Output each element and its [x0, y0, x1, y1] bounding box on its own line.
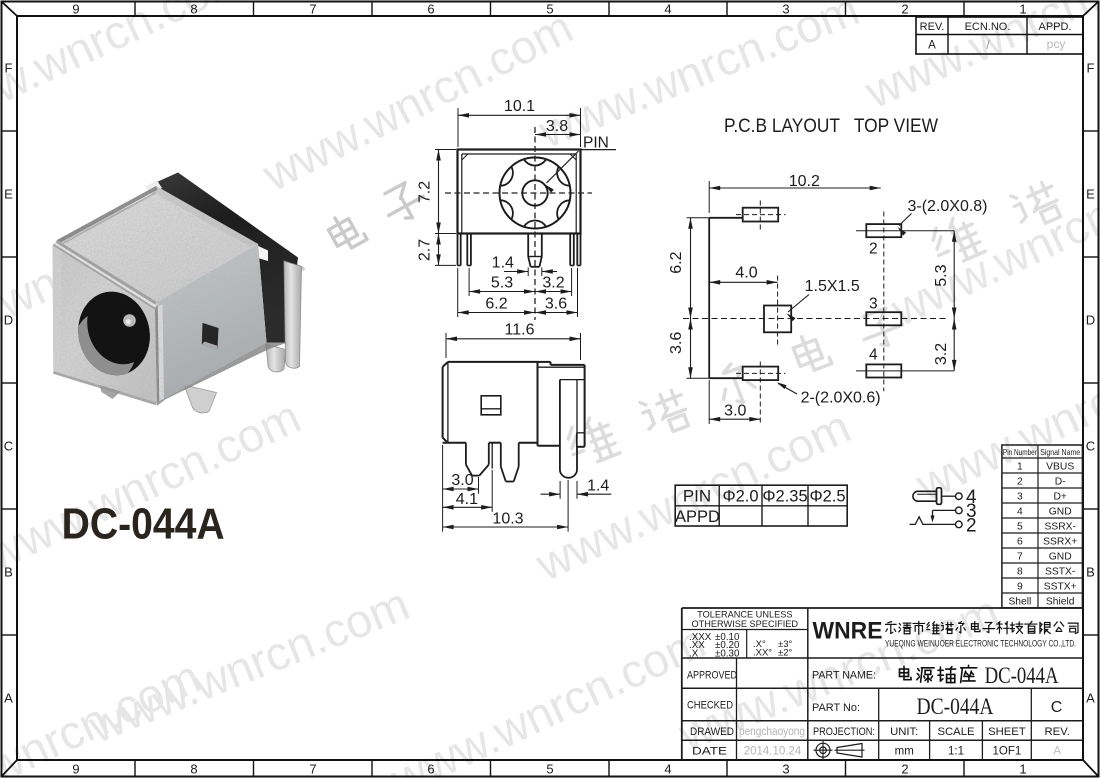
svg-text:DC-044A: DC-044A [62, 500, 225, 549]
svg-text:8: 8 [1017, 566, 1023, 577]
svg-text:4: 4 [1017, 506, 1023, 517]
svg-text:6: 6 [1017, 536, 1023, 547]
svg-text:B: B [4, 565, 13, 580]
svg-text:8: 8 [190, 2, 197, 17]
svg-text:3: 3 [1017, 491, 1023, 502]
svg-text:3: 3 [782, 762, 789, 777]
svg-text:1.4: 1.4 [492, 254, 514, 271]
svg-text:/: / [986, 37, 990, 52]
svg-text:3.8: 3.8 [546, 118, 568, 135]
svg-text:5.3: 5.3 [933, 264, 950, 286]
svg-text:B: B [1086, 565, 1095, 580]
svg-text:10.2: 10.2 [789, 173, 820, 190]
svg-text:CHECKED: CHECKED [687, 700, 733, 712]
svg-text:4: 4 [664, 762, 671, 777]
svg-text:3: 3 [782, 2, 789, 17]
svg-text:PART No:: PART No: [812, 702, 860, 714]
svg-text:5: 5 [1017, 521, 1023, 532]
svg-text:1: 1 [1019, 762, 1026, 777]
svg-text:7: 7 [1017, 551, 1023, 562]
svg-text:9: 9 [72, 762, 79, 777]
svg-text:6: 6 [427, 2, 434, 17]
svg-text:Φ2.35: Φ2.35 [762, 488, 807, 506]
svg-text:3-(2.0X0.8): 3-(2.0X0.8) [907, 198, 987, 215]
svg-text:PIN: PIN [583, 135, 609, 152]
svg-text:2-(2.0X0.6): 2-(2.0X0.6) [801, 390, 881, 407]
svg-text:APPD: APPD [675, 508, 720, 526]
svg-text:PIN: PIN [683, 487, 711, 506]
svg-text:3: 3 [869, 296, 878, 313]
svg-text:UNIT:: UNIT: [890, 726, 918, 738]
svg-text:DC-044A: DC-044A [985, 663, 1059, 689]
svg-text:6.2: 6.2 [485, 296, 507, 313]
svg-text:3.0: 3.0 [451, 472, 473, 489]
svg-text:D-: D- [1055, 476, 1066, 487]
svg-text:5: 5 [546, 2, 553, 17]
svg-text:.X: .X [689, 649, 699, 660]
svg-text:Pin Number: Pin Number [1003, 447, 1037, 457]
svg-text:YUEQING WEINUOER ELECTRONIC TE: YUEQING WEINUOER ELECTRONIC TECHNOLOGY C… [885, 639, 1076, 649]
svg-text:4.1: 4.1 [456, 491, 478, 508]
svg-text:WNRE: WNRE [813, 618, 883, 645]
svg-text:REV.: REV. [1045, 726, 1070, 738]
svg-text:3.6: 3.6 [668, 332, 685, 354]
svg-text:ECN.NO.: ECN.NO. [965, 21, 1011, 33]
svg-text:SHEET: SHEET [988, 726, 1026, 738]
svg-text:F: F [1087, 61, 1095, 76]
svg-text:D+: D+ [1053, 491, 1066, 502]
svg-text:2.7: 2.7 [417, 239, 434, 261]
svg-text:D: D [4, 313, 13, 328]
svg-text:C: C [1086, 439, 1095, 454]
svg-text:1:1: 1:1 [948, 745, 964, 757]
svg-text:2: 2 [966, 516, 977, 537]
svg-text:PART NAME:: PART NAME: [812, 669, 876, 681]
svg-text:DRAWED: DRAWED [690, 726, 734, 738]
svg-text:Shield: Shield [1046, 596, 1075, 607]
svg-text:SCALE: SCALE [937, 726, 975, 738]
svg-text:5: 5 [546, 762, 553, 777]
svg-text:1.5X1.5: 1.5X1.5 [805, 278, 860, 295]
svg-text:D: D [1086, 313, 1095, 328]
svg-text:5.3: 5.3 [491, 275, 513, 292]
svg-text:OTHERWISE SPECIFIED: OTHERWISE SPECIFIED [692, 619, 799, 629]
svg-text:2: 2 [869, 241, 878, 258]
svg-text:10.3: 10.3 [492, 510, 523, 527]
svg-text:3.2: 3.2 [933, 343, 950, 365]
svg-text:3.0: 3.0 [724, 402, 746, 419]
svg-text:11.6: 11.6 [505, 322, 535, 339]
svg-text:.XX°: .XX° [753, 648, 772, 659]
svg-text:Shell: Shell [1008, 596, 1031, 607]
svg-text:8: 8 [190, 762, 197, 777]
svg-text:4.0: 4.0 [735, 265, 757, 282]
svg-text:A: A [1086, 691, 1095, 706]
svg-text:PROJECTION:: PROJECTION: [813, 726, 875, 738]
svg-text:3.6: 3.6 [545, 296, 567, 313]
svg-text:7.2: 7.2 [417, 181, 434, 203]
svg-text:SSRX-: SSRX- [1044, 521, 1075, 532]
svg-text:pengchaoyong: pengchaoyong [739, 724, 805, 738]
svg-text:GND: GND [1049, 506, 1072, 517]
svg-text:GND: GND [1049, 551, 1072, 562]
svg-text:Φ2.0: Φ2.0 [722, 488, 758, 506]
svg-text:1.4: 1.4 [587, 477, 609, 494]
svg-text:C: C [1051, 699, 1063, 716]
svg-text:mm: mm [895, 745, 914, 757]
svg-text:3.2: 3.2 [542, 275, 564, 292]
svg-text:2014.10.24: 2014.10.24 [744, 745, 802, 757]
svg-text:10.1: 10.1 [504, 98, 535, 115]
svg-text:APPD.: APPD. [1038, 21, 1071, 33]
svg-text:DATE: DATE [692, 745, 728, 757]
svg-text:REV.: REV. [920, 21, 945, 33]
svg-text:F: F [5, 61, 13, 76]
svg-text:1: 1 [1019, 2, 1026, 17]
svg-text:pcy: pcy [1047, 37, 1066, 51]
svg-text:DC-044A: DC-044A [917, 694, 994, 720]
svg-text:±0.30: ±0.30 [715, 649, 740, 660]
svg-text:A: A [1053, 746, 1061, 758]
svg-text:Φ2.5: Φ2.5 [809, 488, 845, 506]
svg-text:1OF1: 1OF1 [993, 745, 1022, 757]
svg-text:6: 6 [427, 762, 434, 777]
svg-text:E: E [1086, 187, 1095, 202]
svg-text:7: 7 [309, 762, 316, 777]
svg-text:9: 9 [72, 2, 79, 17]
svg-text:P.C.B LAYOUT TOP VIEW: P.C.B LAYOUT TOP VIEW [724, 116, 938, 137]
svg-text:SSRX+: SSRX+ [1043, 536, 1077, 547]
svg-text:2: 2 [901, 762, 908, 777]
svg-text:1: 1 [1017, 461, 1023, 472]
svg-text:APPROVED: APPROVED [687, 669, 737, 681]
svg-text:SSTX-: SSTX- [1045, 566, 1075, 577]
svg-text:4: 4 [664, 2, 671, 17]
svg-text:A: A [4, 691, 13, 706]
svg-text:SSTX+: SSTX+ [1044, 581, 1077, 592]
svg-text:Signal Name: Signal Name [1040, 447, 1080, 457]
svg-text:4: 4 [869, 347, 878, 364]
svg-text:A: A [928, 40, 936, 52]
svg-text:E: E [4, 187, 13, 202]
svg-text:6.2: 6.2 [668, 251, 685, 273]
svg-text:7: 7 [309, 2, 316, 17]
svg-text:C: C [4, 439, 13, 454]
svg-text:VBUS: VBUS [1046, 461, 1074, 472]
svg-text:9: 9 [1017, 581, 1023, 592]
svg-text:±2°: ±2° [778, 648, 792, 659]
svg-text:2: 2 [1017, 476, 1023, 487]
svg-text:2: 2 [901, 2, 908, 17]
